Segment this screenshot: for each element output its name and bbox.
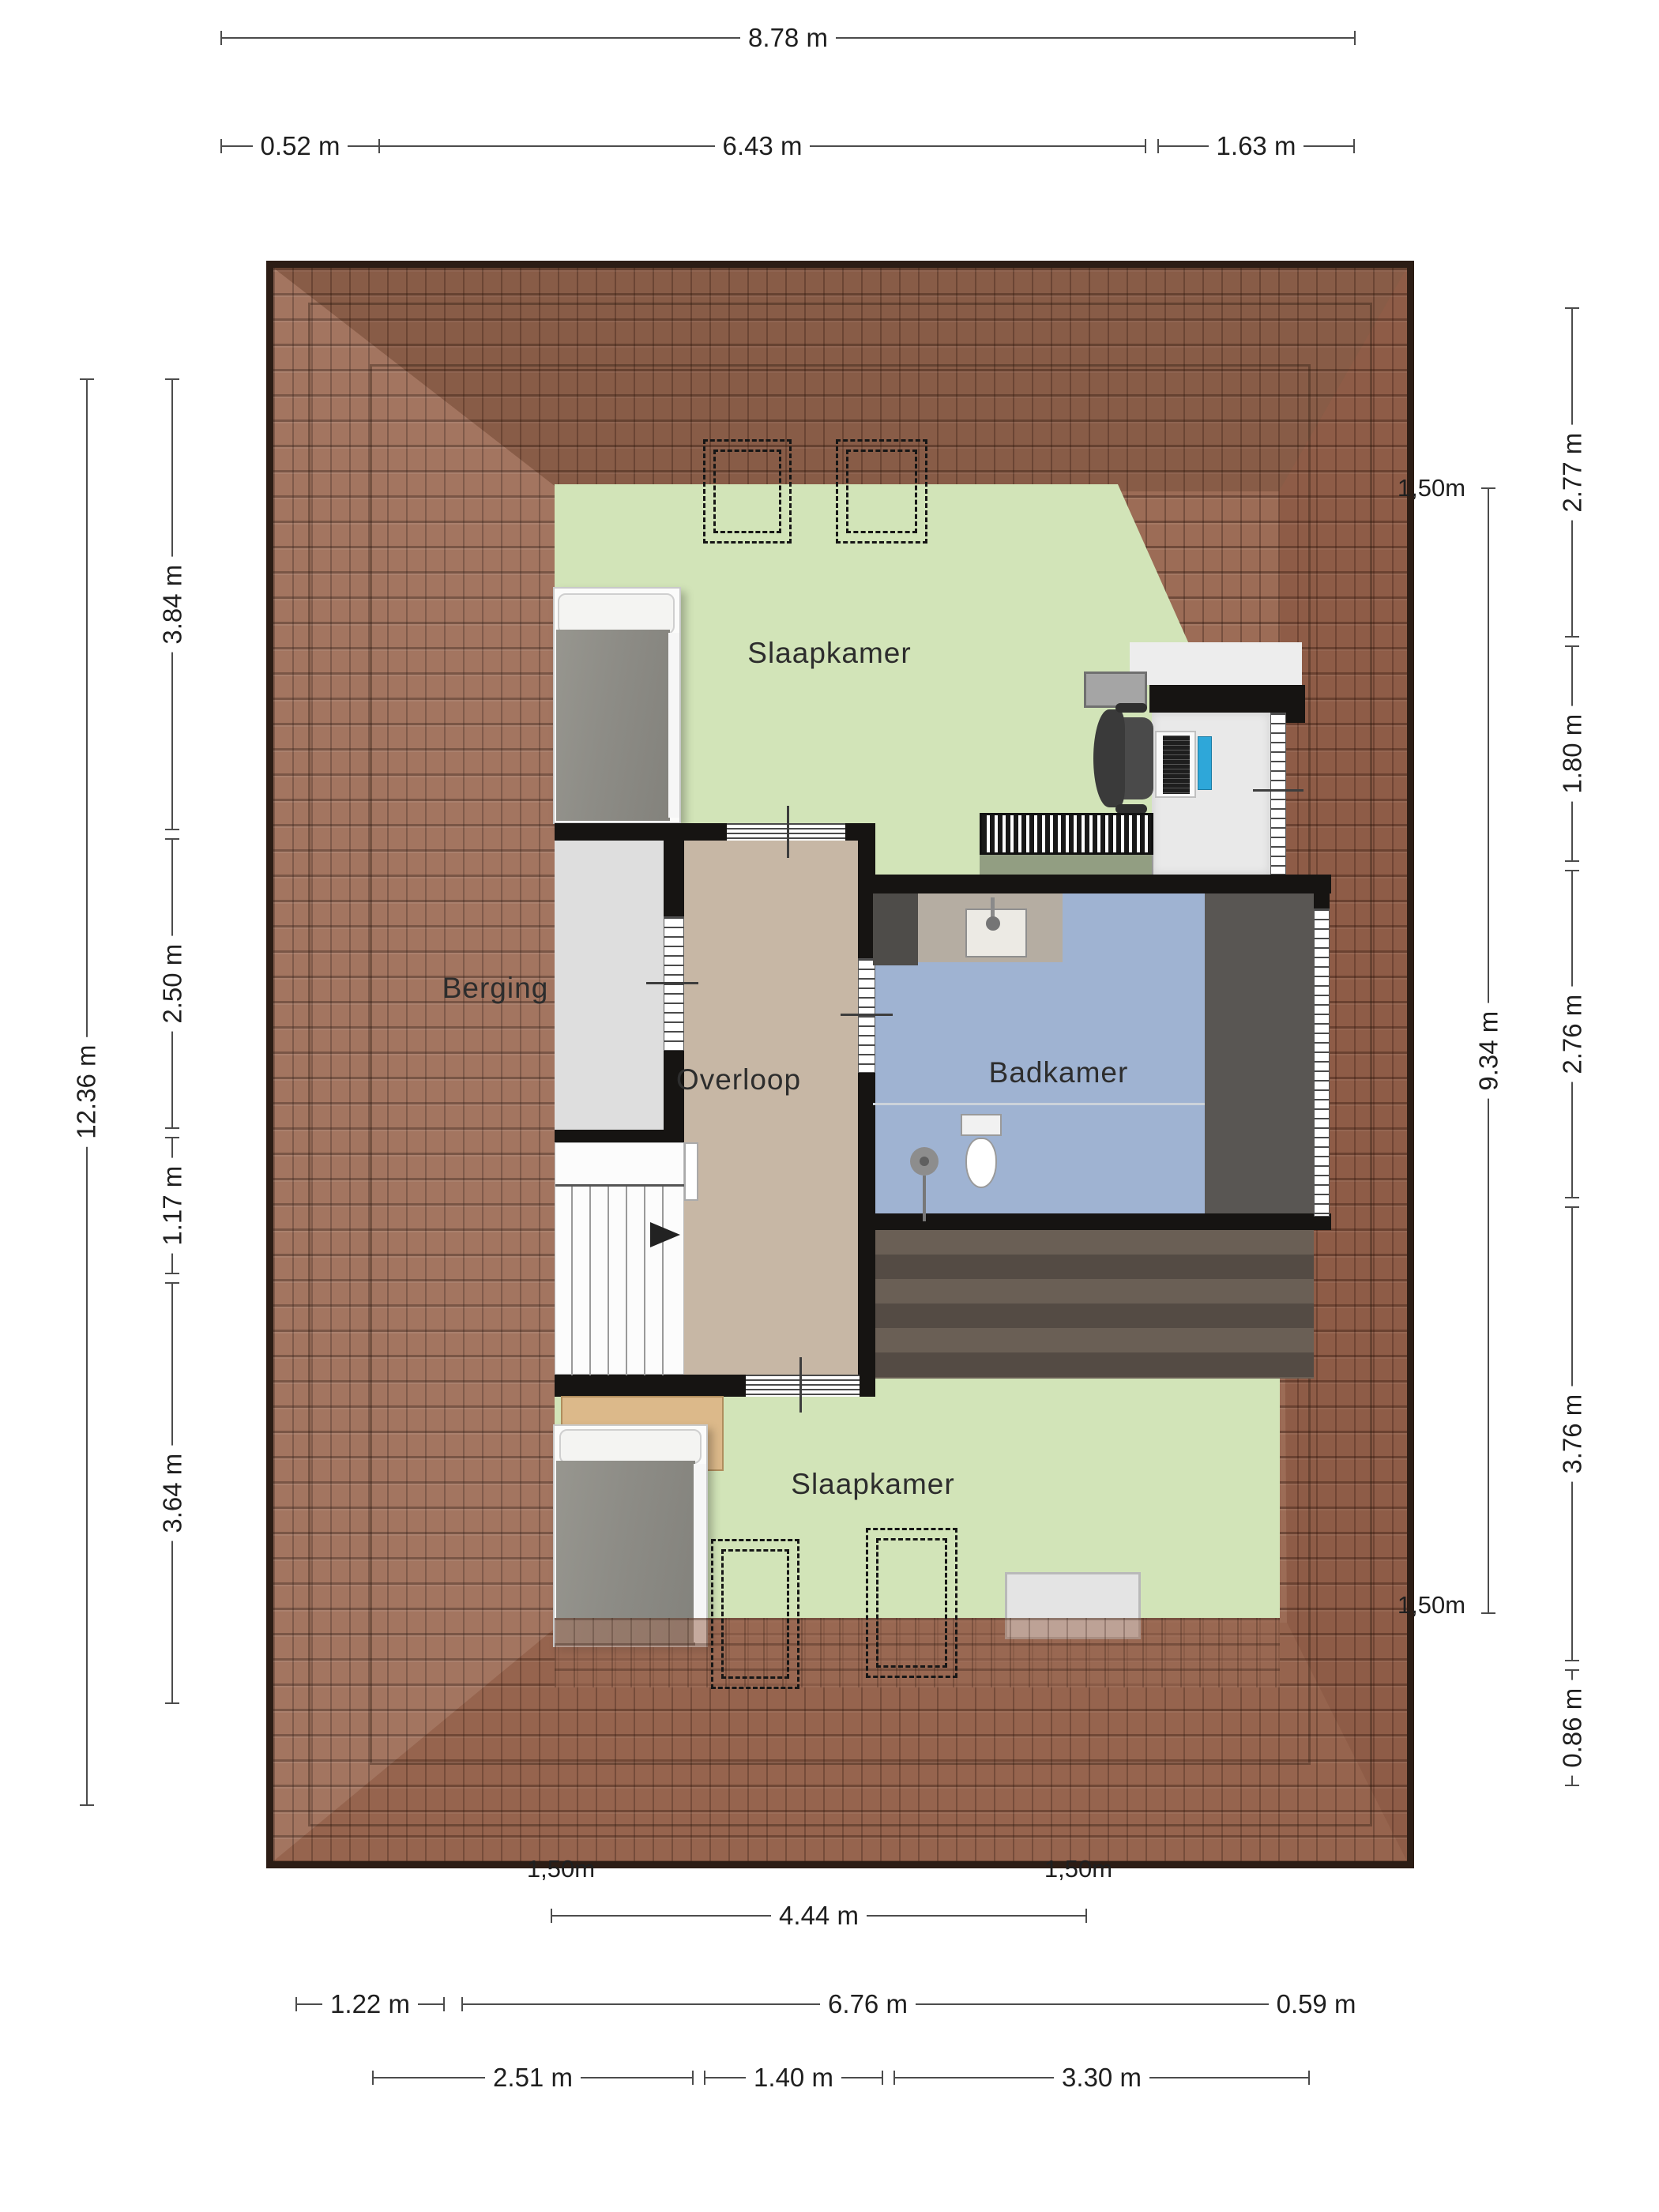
roof-window-dashed-bottom-2 — [866, 1528, 957, 1678]
toilet-tank — [961, 1114, 1002, 1136]
height-marker-top-right: 1,50m — [1376, 474, 1487, 502]
window-bathroom-east — [1314, 908, 1330, 1217]
chair-armrest-top — [1115, 703, 1147, 713]
door-center-tick-storage — [646, 982, 698, 984]
label-storage: Berging — [416, 972, 574, 1005]
laptop-keyboard — [1163, 735, 1190, 794]
window-center-tick-landing — [841, 1014, 893, 1016]
radiator — [980, 813, 1153, 855]
stair-tread — [589, 1187, 591, 1375]
stair-tread — [571, 1187, 573, 1375]
faucet-knob — [986, 916, 1000, 931]
height-marker-bottom-right-outer: 1,50m — [1376, 1591, 1487, 1619]
label-bedroom-top: Slaapkamer — [711, 637, 948, 670]
height-marker-bottom-right: 1,50m — [1023, 1855, 1134, 1883]
shower-stem — [923, 1176, 926, 1221]
bed-bottom-bedroom — [553, 1424, 708, 1647]
roof-window-dashed-bottom-1 — [711, 1539, 799, 1689]
blanket-top-bed — [556, 630, 670, 821]
staircase — [555, 1142, 684, 1375]
wall-nook-corner — [1286, 685, 1305, 723]
label-bathroom: Badkamer — [960, 1056, 1157, 1089]
radiator-shadow — [980, 855, 1153, 875]
stair-tread — [608, 1187, 609, 1375]
roof-window-dashed-top-1 — [703, 439, 792, 544]
sink-basin — [965, 908, 1027, 957]
shower-glass-partition — [873, 1103, 1205, 1105]
door-center-tick-bottom — [799, 1357, 802, 1413]
door-center-tick-top — [787, 806, 789, 858]
floor-bathroom-dark-zone — [1205, 893, 1314, 1217]
stairs-newel — [684, 1142, 698, 1201]
label-landing: Overloop — [640, 1063, 837, 1097]
floor-wood — [875, 1230, 1314, 1379]
label-bedroom-bottom: Slaapkamer — [754, 1468, 991, 1501]
bathroom-cabinet — [873, 893, 918, 965]
door-landing-bedroombottom — [746, 1375, 860, 1397]
shower-head-icon — [910, 1147, 939, 1176]
pillow-top-bed — [558, 593, 675, 634]
sheet-fold-top-bed — [668, 633, 679, 818]
laptop — [1155, 731, 1196, 798]
wall-storage-south — [555, 1130, 684, 1142]
jamb-bathroom-window-top — [1314, 893, 1330, 908]
blue-book — [1198, 736, 1212, 790]
stair-tread — [662, 1187, 664, 1375]
jamb-bathroom-window-bottom — [1314, 1217, 1330, 1230]
stairs-landing-edge — [555, 1184, 685, 1187]
office-chair — [1081, 703, 1160, 814]
door-bedroomtop-landing — [727, 823, 845, 841]
roof-window-dashed-top-2 — [836, 439, 927, 544]
height-marker-bottom-left: 1,50m — [506, 1855, 616, 1883]
stair-tread — [644, 1187, 645, 1375]
bed-top-bedroom — [553, 587, 681, 824]
toilet-bowl — [965, 1138, 997, 1188]
stair-tread — [626, 1187, 627, 1375]
wall-bathroom-south — [873, 1213, 1331, 1230]
nook-wall-top-face — [1130, 642, 1302, 685]
window-center-tick-nook — [1253, 789, 1303, 792]
pillow-bottom-bed — [559, 1429, 702, 1464]
chair-backrest — [1093, 709, 1125, 807]
sink-counter — [918, 893, 1063, 962]
wall-nook-north — [1149, 685, 1303, 713]
wall-bathroom-north — [873, 875, 1331, 893]
sheet-fold-bottom-bed — [694, 1464, 706, 1642]
stairs-direction-arrow-icon — [650, 1222, 680, 1247]
floor-landing — [684, 841, 858, 1375]
floorplan-canvas: Slaapkamer Berging Overloop Badkamer Sla… — [0, 0, 1659, 2212]
window-bedroomtop-east — [1270, 713, 1286, 875]
